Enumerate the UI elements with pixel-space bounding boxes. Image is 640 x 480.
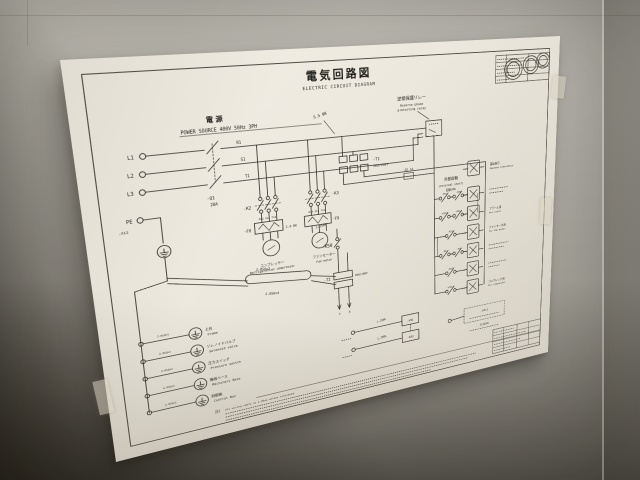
- grounding-legend: 2.0SQ×1 土台 Frame 2.0SQ×1 ソレノイドバルブ Soleno…: [132, 275, 244, 419]
- overload-f9-ref: -F9: [333, 216, 339, 221]
- t2-rating: 200/100V: [355, 271, 368, 277]
- wire-125bl-2: 1.25BL: [377, 334, 387, 341]
- wire-125bl-1: 1.25BL: [376, 317, 386, 324]
- terminal-l3-label: L3: [127, 192, 135, 199]
- coil-5: [463, 241, 483, 258]
- pe-ground-symbol: [157, 245, 172, 259]
- legend-frame-jp: 土台: [205, 326, 213, 332]
- ground-symbol-control-box: [195, 394, 208, 407]
- circuit-diagram-sheet: 電気回路図 ELECTRIC CIRCUIT DIAGRAM: [60, 36, 560, 462]
- wire-gauge-label: 5.5 BK: [313, 111, 328, 120]
- revision-table: [493, 319, 541, 354]
- relay-k50-ref: -K50: [322, 243, 333, 250]
- panel-seam-horizontal: [0, 15, 640, 16]
- coil-6: [463, 260, 483, 277]
- title-english: ELECTRIC CIRCUIT DIAGRAM: [302, 82, 375, 92]
- contactor-k2-ref: -K2: [243, 206, 251, 212]
- legend-wire-3: 2.0SQ×1: [161, 367, 173, 372]
- legend-wire-4: 2.0SQ×1: [163, 384, 175, 389]
- external-start-jp: 外部起動: [444, 175, 458, 182]
- aux-k52-ref: -K52: [407, 334, 414, 339]
- control-ladder: 外部起動 (External start) 起動(PB) -F51 -K50 -…: [434, 156, 513, 301]
- panel-right-edge: [602, 0, 604, 480]
- schematic-drawing: 電気回路図 ELECTRIC CIRCUIT DIAGRAM: [60, 36, 560, 462]
- notes-marker: 注): [215, 409, 221, 415]
- panel-right-shade: [604, 0, 640, 480]
- panel-seam-vertical: [27, 0, 28, 46]
- photo-of-machine-panel: 電気回路図 ELECTRIC CIRCUIT DIAGRAM: [0, 0, 640, 480]
- aux-circuit-fragments: -K51 -K52 1.25BL 1.25BL -K511 CLOSED: [341, 292, 504, 360]
- notes-line-2: [226, 353, 477, 414]
- relay-label-jp: 逆相保護リレー: [397, 94, 426, 102]
- start-pb-label: 起動(PB): [446, 187, 456, 192]
- ground-symbol-pressure: [192, 361, 206, 375]
- title-japanese: 電気回路図: [305, 65, 371, 83]
- wire-r1: R1: [236, 141, 241, 146]
- breaker-rating: 20A: [210, 202, 218, 208]
- contact-ref-c4: -K513: [455, 209, 461, 213]
- legend-frame-en: Frame: [207, 331, 218, 337]
- terminal-l1-label: L1: [127, 155, 135, 162]
- drawing-title: 電気回路図 ELECTRIC CIRCUIT DIAGRAM: [302, 65, 376, 92]
- coil-2: [463, 185, 484, 202]
- cable-spec-2: 2.0SQ×4: [265, 291, 279, 296]
- contact-ref-c6: -F8: [442, 250, 446, 253]
- relay-box: [426, 120, 442, 137]
- legend-wire-5: 2.0SQ×1: [165, 401, 177, 406]
- notes-line-3: [226, 358, 468, 417]
- tape-piece-right-top: [551, 75, 567, 98]
- closed-label: CLOSED: [480, 321, 489, 326]
- aux-k511-ref: -K511: [481, 308, 489, 313]
- wire-t1: T1: [245, 174, 250, 179]
- t2-tap-2: 2: [339, 312, 341, 316]
- notes-line-4: [226, 370, 431, 421]
- branch-gauge: 2.0 BK: [286, 223, 298, 228]
- aux-k51-ref: -K51: [407, 318, 414, 323]
- coil-compressor: [463, 278, 483, 295]
- ground-symbol-solenoid: [190, 344, 204, 358]
- overload-f8: [254, 220, 283, 235]
- overload-f8-ref: -F8: [244, 229, 251, 234]
- legend-wire-2: 2.0SQ×1: [159, 350, 171, 355]
- terminal-pe-label: PE: [126, 219, 134, 225]
- contactor-k3-ref: -K3: [332, 191, 339, 196]
- transformer-t2: -T2 200/100V 2 3: [324, 267, 369, 318]
- cable-runs: 2.0SQ×2 2.0SQ×4 1.25BK -K50 -T2 200/100V…: [164, 216, 370, 349]
- ground-symbol-base: [194, 377, 208, 391]
- terminal-block-ref: -X12: [118, 231, 129, 237]
- coil-alarm: [463, 204, 484, 221]
- legend-wire-1: 2.0SQ×1: [157, 333, 169, 338]
- t2-ref: -T2: [324, 278, 331, 283]
- t1-ref: -T1: [373, 157, 380, 162]
- t1-rating: 400/200V: [373, 162, 389, 168]
- tape-piece-right-middle: [539, 198, 551, 225]
- pressure-interlock-box: [464, 300, 504, 323]
- contact-ref-c9: -K511: [447, 285, 453, 289]
- breaker-ref: -Q1: [207, 196, 216, 202]
- overload-f9: [304, 213, 331, 227]
- branch-k2-compressor: -K2 R12 S12 T12 -F8 2.0 BK コンプレッサー Refri…: [238, 141, 300, 275]
- coil-alarm-en: For alarm: [489, 210, 501, 214]
- coil-fan: [463, 223, 483, 240]
- wire-s1: S1: [241, 157, 246, 162]
- notes-section: 注) All wiring cable is 1.25sq unless ind…: [214, 330, 540, 423]
- contact-ref-c2: -K50: [456, 190, 461, 193]
- reverse-phase-relay: 逆相保護リレー Reverse phase protecting relay: [397, 93, 442, 178]
- t2-tap-3: 3: [349, 310, 351, 314]
- terminal-l2-label: L2: [127, 173, 135, 180]
- wire-125bk: 1.25BK: [315, 222, 327, 230]
- breaker-q1: -Q1 20A: [202, 141, 224, 208]
- power-heading-jp: 電 源: [205, 114, 223, 124]
- ground-symbol-frame: [188, 327, 202, 341]
